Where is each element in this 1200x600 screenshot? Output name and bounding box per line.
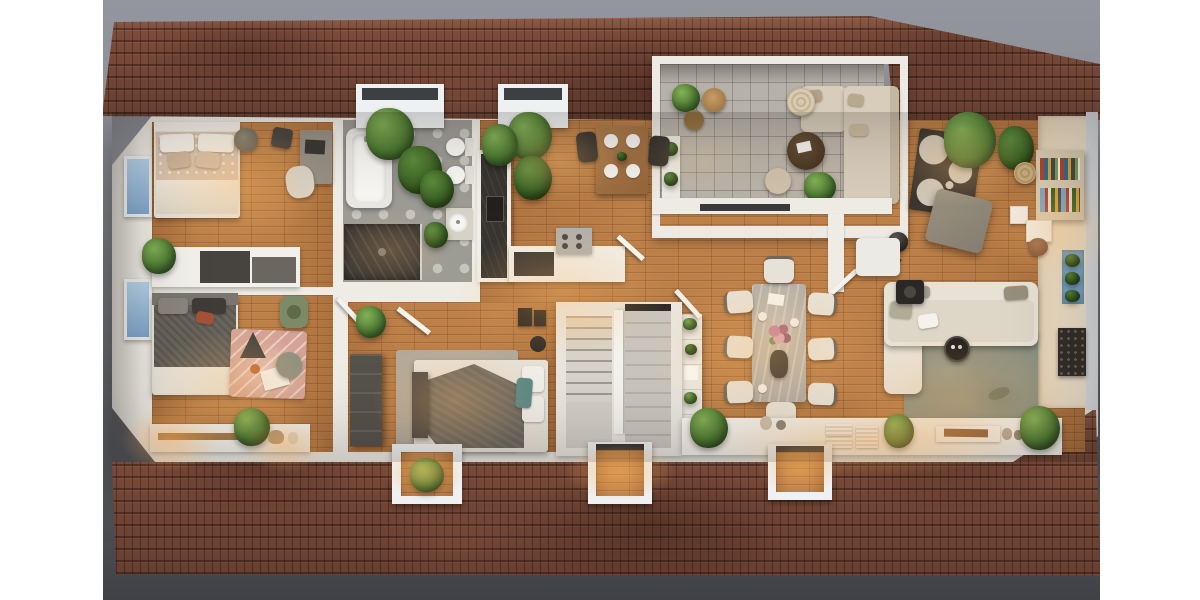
- kitchen-worktop-corner: [514, 252, 554, 276]
- toy-orange: [250, 364, 260, 374]
- dining-chair: [723, 335, 753, 358]
- blue-planter-plant: [1065, 290, 1080, 302]
- washbasin: [448, 212, 468, 232]
- letterbox-right: [1100, 0, 1200, 600]
- dormer-lintel: [776, 446, 824, 452]
- dark-wall-panel: [1058, 328, 1086, 376]
- stair-return-flight: [625, 308, 671, 448]
- terrace-log-stool: [702, 88, 726, 112]
- master-bed-headboard: [154, 122, 240, 131]
- cooktop-burner: [576, 243, 582, 249]
- etagere-plant: [683, 318, 697, 330]
- kids-chair-seat-hole: [287, 305, 301, 319]
- dormer-floor: [776, 452, 824, 492]
- cooktop-burner: [562, 234, 568, 240]
- dining-chair: [808, 383, 838, 406]
- master-pillow: [160, 133, 195, 152]
- master-accent-pillow: [195, 151, 221, 169]
- speaker-box: [518, 308, 532, 326]
- speaker-box: [534, 310, 546, 326]
- terrace-topiary-plant: [672, 84, 700, 112]
- master-desk-laptop: [305, 139, 326, 154]
- vacuum-button: [951, 345, 955, 349]
- console-vase: [760, 416, 772, 430]
- console-plant: [884, 414, 914, 448]
- floor-plan-render: [0, 0, 1200, 600]
- bookshelf-books-row: [1040, 188, 1080, 212]
- dormer-glass-strip: [504, 88, 562, 100]
- stair-opening-edge: [625, 304, 671, 311]
- west-window-top: [124, 156, 152, 217]
- toilet-tank: [465, 138, 474, 156]
- kitchen-corner-plant: [514, 156, 552, 200]
- roof-slope-top: [100, 16, 1100, 120]
- bedroom3-teal-pillow: [515, 377, 533, 408]
- kids-pillow: [158, 298, 188, 314]
- dormer-lintel: [596, 444, 644, 450]
- terrace-planter-plant: [664, 172, 678, 186]
- robot-vacuum: [944, 336, 970, 362]
- stair-center-wall: [614, 310, 623, 434]
- brown-pouf: [1028, 238, 1048, 256]
- dining-napkin: [767, 293, 784, 306]
- bottom-dormer-left: [392, 444, 462, 504]
- kids-shelf-wood-board: [158, 433, 246, 440]
- outdoor-sofa-cushion: [847, 93, 865, 107]
- master-accent-pillow: [167, 151, 191, 170]
- master-pillow: [198, 133, 235, 152]
- jute-pouf: [1014, 162, 1036, 184]
- master-stool: [270, 126, 293, 149]
- console-vase-dark: [776, 420, 786, 430]
- dark-fire-table: [896, 280, 924, 304]
- bottom-dormer-right: [768, 444, 832, 500]
- place-setting: [626, 164, 640, 178]
- outdoor-sofa-cushion: [850, 124, 868, 136]
- etagere-plant: [684, 392, 697, 404]
- kitchen-corner-plant: [482, 124, 518, 166]
- console-plant: [690, 408, 728, 448]
- dining-chair: [807, 337, 837, 360]
- white-cube-stool: [856, 238, 900, 276]
- breakfast-table: [596, 126, 648, 194]
- shower-glass-edge: [420, 224, 422, 280]
- terrace-log-stool-small: [684, 110, 704, 130]
- stair-flight-treads: [566, 316, 612, 402]
- terrace-pouf-beige: [765, 168, 791, 194]
- dormer-plant: [410, 458, 444, 492]
- dining-chair: [807, 292, 837, 316]
- bedroom3-plant: [356, 306, 386, 338]
- wood-cutting-board: [944, 429, 988, 438]
- console-pot: [1002, 428, 1012, 440]
- place-setting: [604, 164, 618, 178]
- console-plant-right: [1020, 406, 1060, 450]
- dark-wardrobe: [350, 354, 382, 446]
- bookshelf-books-row: [1040, 158, 1080, 180]
- terrace-pouf-woven: [787, 88, 815, 116]
- flower-centerpiece: [766, 322, 794, 348]
- staircase: [556, 302, 682, 456]
- master-side-table: [234, 128, 258, 152]
- dormer-glass-strip: [362, 88, 438, 100]
- kids-shelf-basket: [268, 430, 284, 444]
- cooktop-burner: [576, 234, 582, 240]
- dining-vase: [770, 350, 788, 378]
- dining-chair: [724, 381, 754, 404]
- bathroom-plant: [424, 222, 448, 248]
- kitchen-sink: [486, 196, 504, 222]
- bedroom3-bed: [414, 360, 548, 452]
- bottom-dormer-center: [588, 442, 652, 504]
- etagere-box: [684, 366, 698, 380]
- blue-planter-plant: [1065, 272, 1080, 285]
- bidet-tank: [465, 166, 474, 184]
- dining-chair-head: [764, 256, 794, 283]
- vacuum-button: [958, 345, 962, 349]
- tv-lounge-plant-large: [944, 112, 996, 168]
- dining-chair: [723, 290, 753, 314]
- ribbed-storage-box: [826, 424, 852, 436]
- kids-bed-knit-throw: [154, 305, 236, 367]
- letterbox-left: [0, 0, 103, 600]
- etagere-plant: [685, 344, 697, 355]
- terrace-sliding-door: [700, 204, 790, 211]
- kitchen-chair-right: [648, 135, 671, 167]
- cooktop-burner: [562, 243, 568, 249]
- kids-bed-sheet: [154, 367, 236, 393]
- master-bed-sheet: [156, 180, 238, 214]
- kids-round-pouf: [276, 352, 302, 378]
- place-setting: [604, 134, 618, 148]
- washbasin-drain: [456, 220, 460, 224]
- west-window-bottom: [124, 279, 152, 340]
- master-plant: [142, 238, 176, 274]
- toilet-bowl: [446, 138, 465, 156]
- bedroom3-gray-throw: [420, 364, 524, 448]
- shower-drain: [378, 248, 386, 256]
- dining-plate: [790, 318, 799, 327]
- walk-in-shower: [344, 224, 422, 280]
- bedroom3-side-table: [530, 336, 546, 352]
- kids-chair-sage: [280, 296, 308, 328]
- kids-shelf-plant: [234, 408, 270, 446]
- east-facade-strip: [1086, 112, 1098, 410]
- dining-plate: [758, 384, 767, 393]
- ribbed-storage-box: [856, 426, 878, 448]
- sofa-cushion: [1004, 285, 1029, 301]
- kids-shelf-vase: [288, 432, 298, 444]
- dresser-dark-inlay: [252, 257, 296, 283]
- terrace-roof-shadow: [660, 64, 884, 84]
- dresser-dark-inlay: [200, 251, 250, 283]
- bed-foot-bench: [412, 372, 428, 438]
- cooktop-unit: [556, 228, 592, 254]
- fire-table-bowl: [904, 286, 916, 298]
- table-greenery: [617, 152, 627, 161]
- dormer-floor: [596, 450, 644, 496]
- bookshelf: [1036, 150, 1084, 220]
- dining-plate: [758, 312, 767, 321]
- place-setting: [626, 134, 640, 148]
- kitchen-chair-left: [575, 131, 598, 163]
- wall-hung-toilet: [446, 136, 474, 158]
- blue-planter-plant: [1065, 254, 1080, 267]
- dormer-plant: [420, 170, 454, 208]
